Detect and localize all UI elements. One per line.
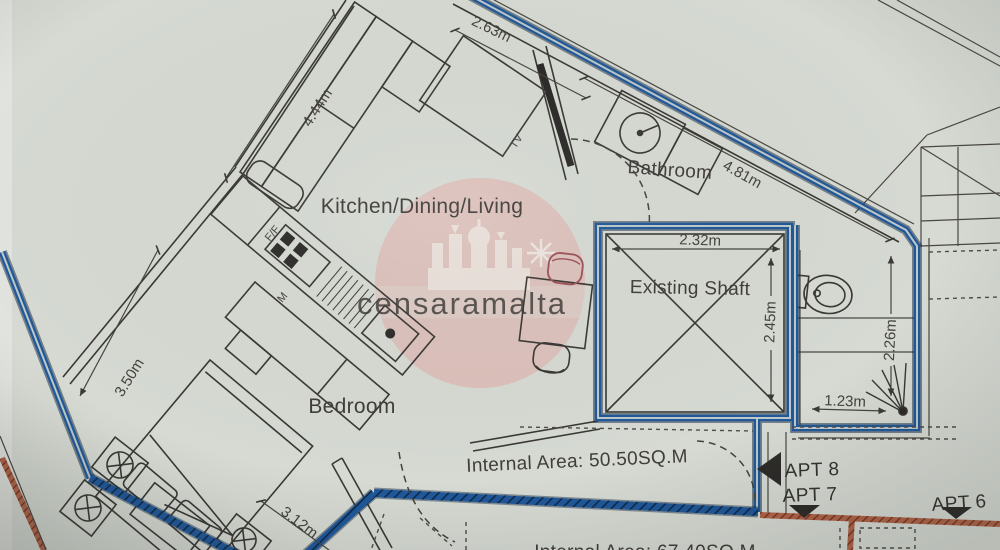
apt8-label: APT 8 <box>784 459 840 482</box>
dim-bathroom-width: 1.23m <box>824 392 866 410</box>
room-label-bedroom: Bedroom <box>308 395 395 418</box>
dim-shaft-width: 2.32m <box>679 231 721 249</box>
room-label-existing-shaft: Existing Shaft <box>630 277 751 300</box>
dim-shaft-depth: 2.45m <box>761 301 779 343</box>
dim-bathroom-length: 2.26m <box>881 319 900 362</box>
watermark-text: censaramalta <box>357 286 567 321</box>
star-watermark-icon <box>527 239 555 267</box>
floorplan-photo: censaramalta <box>0 0 1000 550</box>
internal-area-lower-label: Internal Area: 67.40SQ.M <box>534 542 756 550</box>
apt7-label: APT 7 <box>782 484 838 507</box>
room-label-kitchen-dining-living: Kitchen/Dining/Living <box>321 195 523 218</box>
floorplan-drawing: censaramalta <box>0 0 1000 550</box>
party-wall <box>850 519 852 550</box>
